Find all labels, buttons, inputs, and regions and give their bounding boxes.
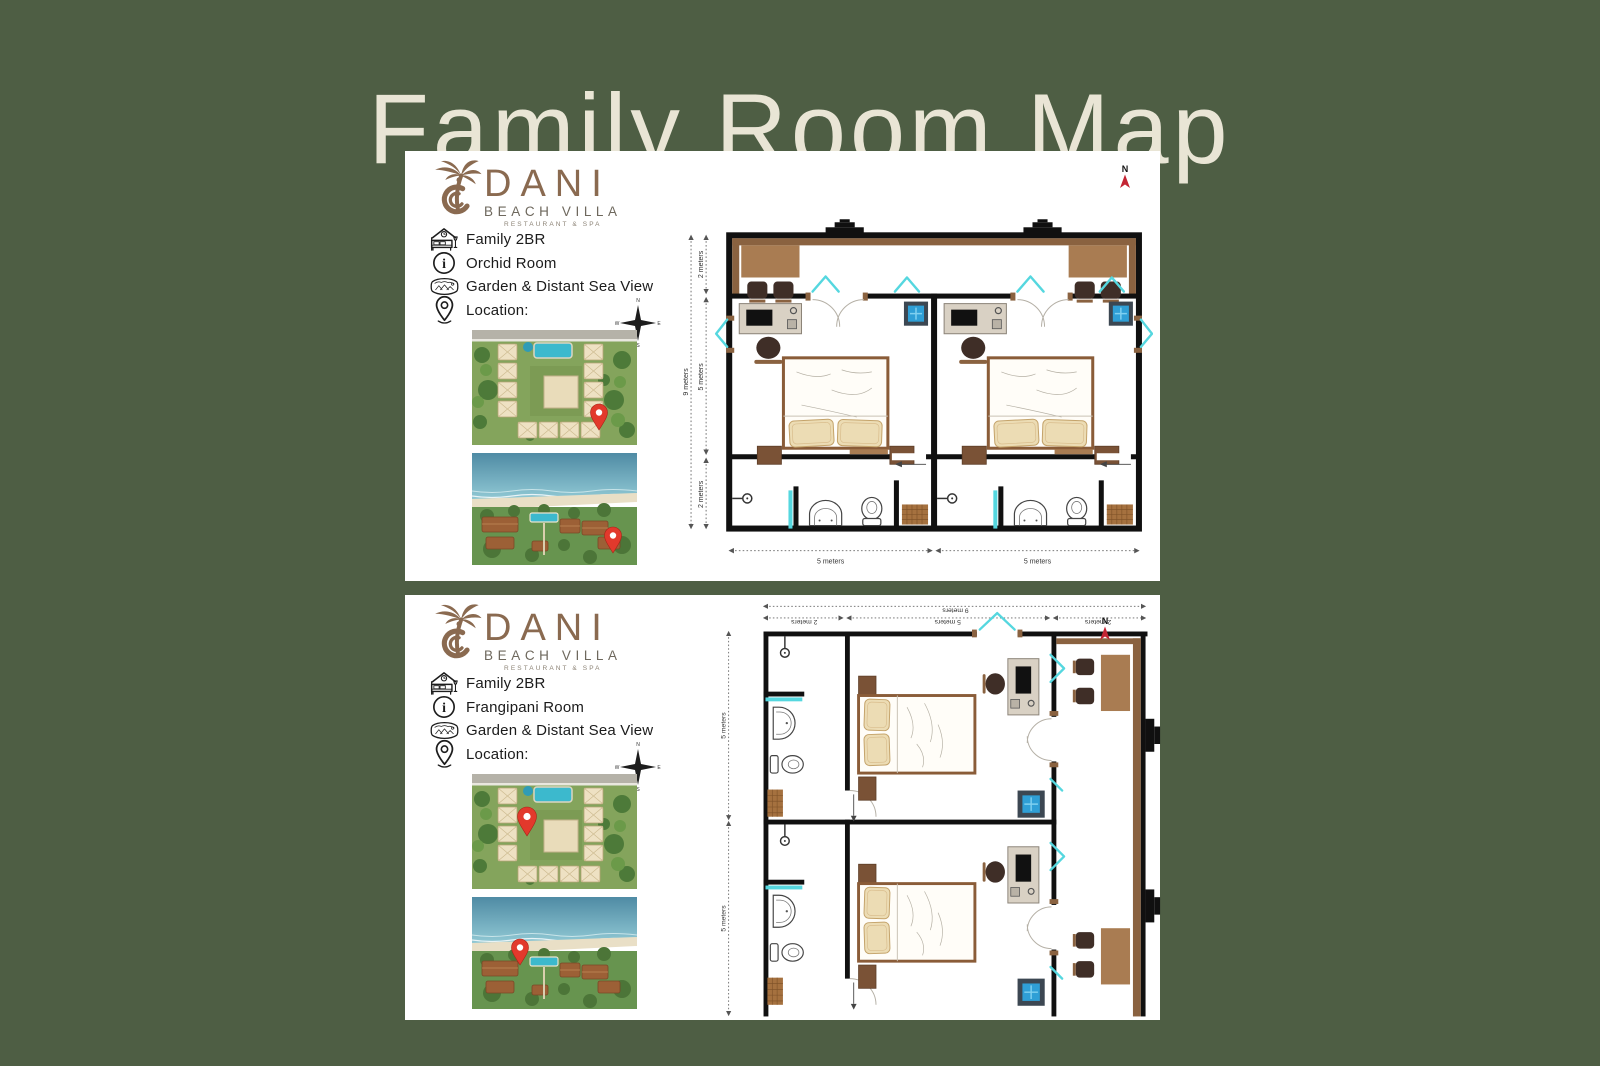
brand-subtitle: BEACH VILLA <box>484 204 622 219</box>
svg-text:2 meters: 2 meters <box>698 250 705 278</box>
svg-text:2 meters: 2 meters <box>698 480 705 508</box>
svg-text:E: E <box>657 765 661 771</box>
svg-text:5 meters: 5 meters <box>721 712 728 739</box>
svg-text:i: i <box>442 700 446 715</box>
svg-text:5 meters: 5 meters <box>721 905 728 932</box>
resort-aerial-photo <box>472 330 637 445</box>
svg-text:5 meters: 5 meters <box>1024 559 1052 566</box>
beach-aerial-photo <box>472 453 637 565</box>
dividing-wall <box>764 820 1057 825</box>
north-arrow-icon <box>1099 626 1111 641</box>
svg-text:E: E <box>657 321 661 327</box>
detail-room-type: Family 2BR <box>429 672 653 696</box>
terrace-table <box>1101 928 1130 984</box>
north-label: N <box>1122 165 1129 174</box>
detail-label: Garden & Distant Sea View <box>466 722 653 739</box>
dani-beach-villa-logo: DANI BEACH VILLA RESTAURANT & SPA <box>425 157 622 229</box>
detail-label: Frangipani Room <box>466 699 584 716</box>
svg-text:5 meters: 5 meters <box>934 618 961 625</box>
palm-tree-icon <box>425 601 483 673</box>
bed-icon <box>429 226 459 253</box>
balinese-gate <box>826 219 864 235</box>
pool <box>530 957 558 966</box>
svg-text:W: W <box>615 765 620 771</box>
detail-room-name: i Frangipani Room <box>429 696 653 720</box>
north-indicator: N <box>1119 165 1131 189</box>
detail-label: Location: <box>466 746 529 763</box>
balinese-gate <box>1146 719 1161 752</box>
balinese-gate <box>1146 889 1161 922</box>
north-label: N <box>1102 617 1109 626</box>
brand-tagline: RESTAURANT & SPA <box>504 665 602 672</box>
detail-label: Garden & Distant Sea View <box>466 278 653 295</box>
bed-icon <box>429 670 459 697</box>
detail-label: Orchid Room <box>466 255 557 272</box>
brand-name: DANI <box>484 165 622 203</box>
pool <box>534 787 572 802</box>
dividing-wall <box>931 294 937 529</box>
resort-aerial-photo <box>472 774 637 889</box>
detail-room-type: Family 2BR <box>429 228 653 252</box>
room-card-orchid: DANI BEACH VILLA RESTAURANT & SPA <box>405 151 1160 581</box>
north-indicator: N <box>1099 617 1111 641</box>
dani-beach-villa-logo: DANI BEACH VILLA RESTAURANT & SPA <box>425 601 622 673</box>
svg-text:9 meters: 9 meters <box>942 606 969 613</box>
info-icon: i <box>429 251 459 275</box>
brand-name: DANI <box>484 609 622 647</box>
detail-label: Location: <box>466 302 529 319</box>
svg-text:9 meters: 9 meters <box>683 368 690 396</box>
room-card-frangipani: DANI BEACH VILLA RESTAURANT & SPA <box>405 595 1160 1020</box>
detail-label: Family 2BR <box>466 231 546 248</box>
location-pin-icon <box>429 739 459 769</box>
pool <box>530 513 558 522</box>
detail-room-name: i Orchid Room <box>429 252 653 276</box>
palm-tree-icon <box>425 157 483 229</box>
svg-text:i: i <box>442 256 446 271</box>
svg-text:N: N <box>636 298 640 304</box>
brand-tagline: RESTAURANT & SPA <box>504 221 602 228</box>
brand-subtitle: BEACH VILLA <box>484 648 622 663</box>
panorama-view-icon <box>429 720 459 741</box>
floorplan-orchid: 9 meters 2 meters 5 meters 2 meters 5 me… <box>681 219 1153 573</box>
detail-label: Family 2BR <box>466 675 546 692</box>
floorplan-frangipani: 9 meters 2 meters 5 meters 2 meters 5 me… <box>717 598 1163 1017</box>
restaurant-building <box>544 820 578 852</box>
svg-text:2 meters: 2 meters <box>790 618 817 625</box>
pool <box>534 343 572 358</box>
north-arrow-icon <box>1119 174 1131 189</box>
location-pin-icon <box>429 295 459 325</box>
terrace-table <box>1069 245 1127 277</box>
svg-text:N: N <box>636 742 640 748</box>
svg-text:5 meters: 5 meters <box>698 363 705 391</box>
terrace-table <box>741 245 799 277</box>
beach-aerial-photo <box>472 897 637 1009</box>
restaurant-building <box>544 376 578 408</box>
svg-text:W: W <box>615 321 620 327</box>
panorama-view-icon <box>429 276 459 297</box>
terrace-table <box>1101 655 1130 711</box>
info-icon: i <box>429 695 459 719</box>
balinese-gate <box>1023 219 1061 235</box>
svg-text:5 meters: 5 meters <box>817 559 845 566</box>
